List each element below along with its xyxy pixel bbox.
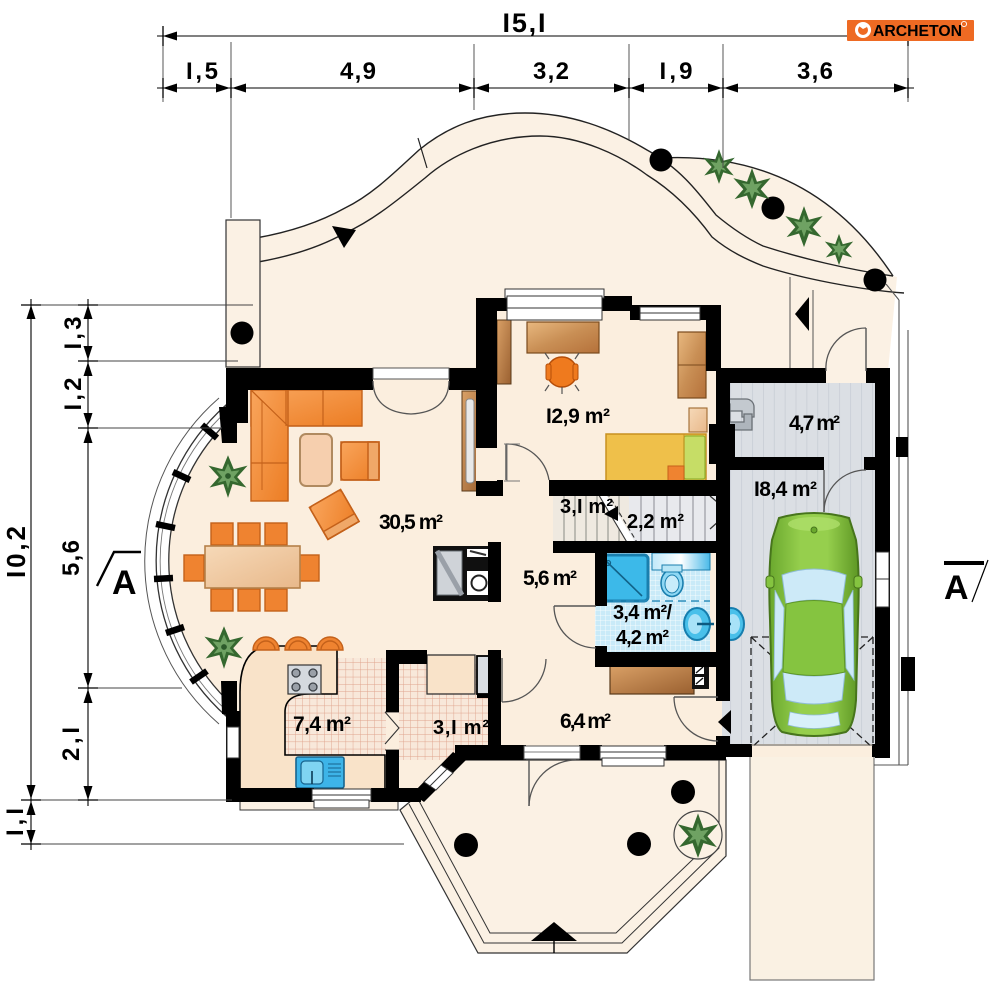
svg-text:I5,I: I5,I (503, 8, 546, 38)
svg-text:2,2 m²: 2,2 m² (627, 511, 684, 533)
svg-text:3,I m²: 3,I m² (560, 496, 613, 518)
svg-text:3,I m²: 3,I m² (433, 717, 489, 739)
svg-text:3,6: 3,6 (797, 58, 833, 85)
svg-text:I8,4 m²: I8,4 m² (754, 478, 817, 501)
svg-text:I2,9 m²: I2,9 m² (546, 405, 610, 428)
svg-text:7,4 m²: 7,4 m² (293, 713, 351, 736)
svg-text:5,6: 5,6 (58, 540, 85, 576)
svg-text:ARCHETON: ARCHETON (873, 23, 962, 40)
svg-text:A: A (944, 569, 969, 607)
svg-text:4,9: 4,9 (340, 58, 376, 85)
svg-text:3,4 m²/: 3,4 m²/ (613, 602, 672, 624)
svg-text:4,7 m²: 4,7 m² (789, 412, 840, 435)
svg-text:6,4 m²: 6,4 m² (560, 710, 611, 733)
svg-text:I,I: I,I (2, 808, 29, 836)
svg-text:5,6 m²: 5,6 m² (523, 567, 577, 590)
svg-text:3,2: 3,2 (533, 58, 569, 85)
svg-text:4,2 m²: 4,2 m² (616, 627, 669, 649)
svg-text:A: A (112, 564, 137, 602)
svg-text:310: 310 (716, 434, 733, 459)
svg-text:2,I: 2,I (58, 727, 85, 761)
svg-text:30,5 m²: 30,5 m² (379, 511, 443, 534)
